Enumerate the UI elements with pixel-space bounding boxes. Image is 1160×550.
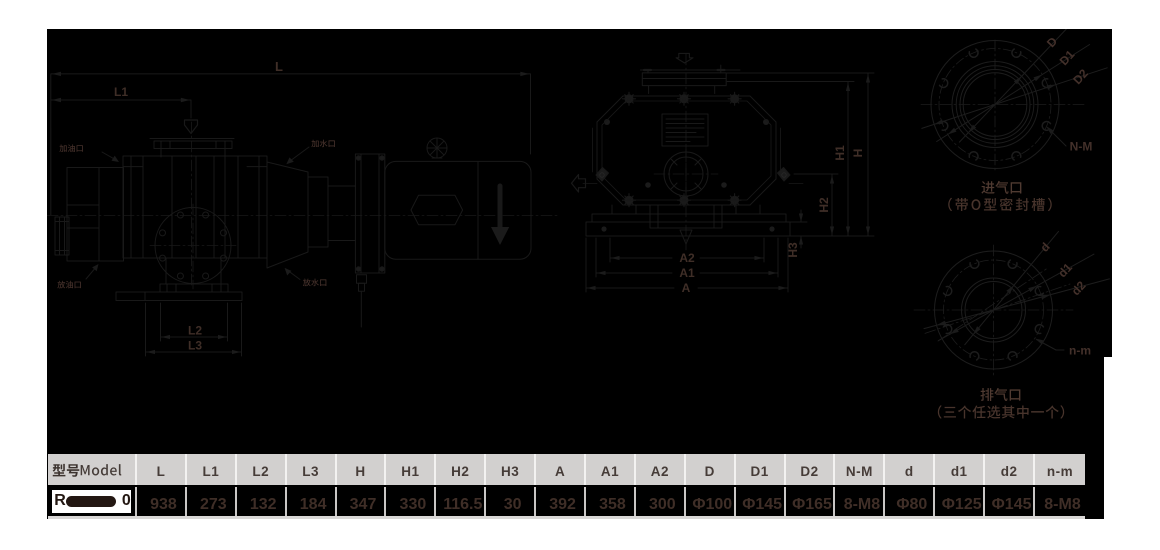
svg-text:N-M: N-M (1070, 140, 1093, 154)
svg-text:H1: H1 (833, 145, 847, 161)
svg-text:L3: L3 (188, 339, 202, 353)
svg-text:H: H (851, 149, 865, 158)
svg-text:L1: L1 (114, 85, 128, 99)
svg-text:H2: H2 (817, 197, 831, 213)
svg-text:D1: D1 (1057, 47, 1078, 68)
svg-text:A: A (682, 281, 691, 295)
svg-text:L: L (275, 59, 283, 74)
svg-text:A1: A1 (679, 266, 695, 280)
svg-text:D2: D2 (1070, 66, 1091, 87)
svg-text:L2: L2 (188, 324, 202, 338)
svg-text:n-m: n-m (1069, 344, 1091, 358)
svg-text:d2: d2 (1069, 278, 1089, 298)
svg-text:d: d (1037, 240, 1052, 255)
svg-text:d1: d1 (1055, 260, 1075, 280)
svg-text:H3: H3 (786, 242, 800, 258)
svg-text:D: D (1044, 34, 1060, 50)
svg-text:A2: A2 (679, 251, 695, 265)
